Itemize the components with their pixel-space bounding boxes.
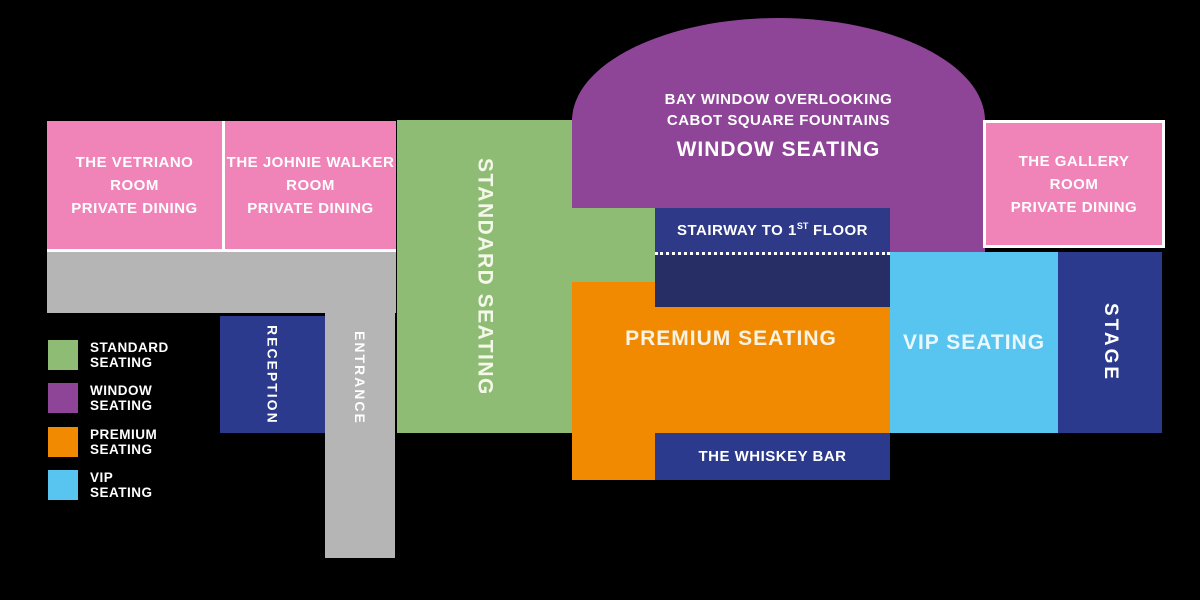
zone-vip-seating: VIP SEATING [890, 252, 1058, 433]
venue-floor-plan: BAY WINDOW OVERLOOKING CABOT SQUARE FOUN… [0, 0, 1200, 600]
room-vetriano-label: THE VETRIANO ROOM PRIVATE DINING [71, 151, 197, 220]
stairway-box: STAIRWAY TO 1ST FLOOR [655, 208, 890, 255]
bay-window-line1: BAY WINDOW OVERLOOKING [572, 89, 985, 110]
legend-label-premium: PREMIUMSEATING [90, 427, 157, 457]
room-johnie-walker-label: THE JOHNIE WALKER ROOM PRIVATE DINING [227, 151, 395, 220]
legend-item-window: WINDOWSEATING [48, 383, 153, 413]
bay-window-line2: CABOT SQUARE FOUNTAINS [572, 110, 985, 131]
stairway-superscript: ST [797, 221, 809, 231]
private-dining-rooms: THE VETRIANO ROOM PRIVATE DINING THE JOH… [47, 121, 396, 252]
window-seating-text-group: BAY WINDOW OVERLOOKING CABOT SQUARE FOUN… [572, 89, 985, 162]
whiskey-bar-label: THE WHISKEY BAR [698, 448, 846, 465]
stairway-label: STAIRWAY TO 1ST FLOOR [677, 221, 868, 239]
legend-label-vip: VIPSEATING [90, 470, 153, 500]
reception-label: RECEPTION [265, 325, 281, 425]
legend-swatch-premium [48, 427, 78, 457]
legend-label-window: WINDOWSEATING [90, 383, 153, 413]
legend-item-vip: VIPSEATING [48, 470, 153, 500]
vip-seating-label: VIP SEATING [903, 331, 1045, 355]
standard-seating-label: STANDARD SEATING [473, 158, 497, 396]
whiskey-bar: THE WHISKEY BAR [655, 433, 890, 480]
entrance-corridor: ENTRANCE [325, 252, 395, 558]
legend-item-premium: PREMIUMSEATING [48, 427, 157, 457]
room-vetriano: THE VETRIANO ROOM PRIVATE DINING [47, 121, 222, 249]
zone-standard-seating-extension [572, 208, 655, 282]
room-gallery-label: THE GALLERY ROOM PRIVATE DINING [1011, 150, 1137, 219]
legend-swatch-vip [48, 470, 78, 500]
room-johnie-walker: THE JOHNIE WALKER ROOM PRIVATE DINING [225, 121, 396, 249]
legend-item-standard: STANDARDSEATING [48, 340, 169, 370]
room-gallery: THE GALLERY ROOM PRIVATE DINING [983, 120, 1165, 248]
entrance-label: ENTRANCE [352, 331, 368, 480]
stairway-landing [655, 255, 890, 307]
stage-label: STAGE [1099, 303, 1121, 382]
legend-swatch-window [48, 383, 78, 413]
premium-seating-label: PREMIUM SEATING [572, 327, 890, 351]
stage: STAGE [1058, 252, 1162, 433]
reception: RECEPTION [220, 316, 325, 433]
window-seating-label: WINDOW SEATING [572, 138, 985, 162]
legend-label-standard: STANDARDSEATING [90, 340, 169, 370]
legend-swatch-standard [48, 340, 78, 370]
zone-standard-seating: STANDARD SEATING [397, 120, 572, 433]
